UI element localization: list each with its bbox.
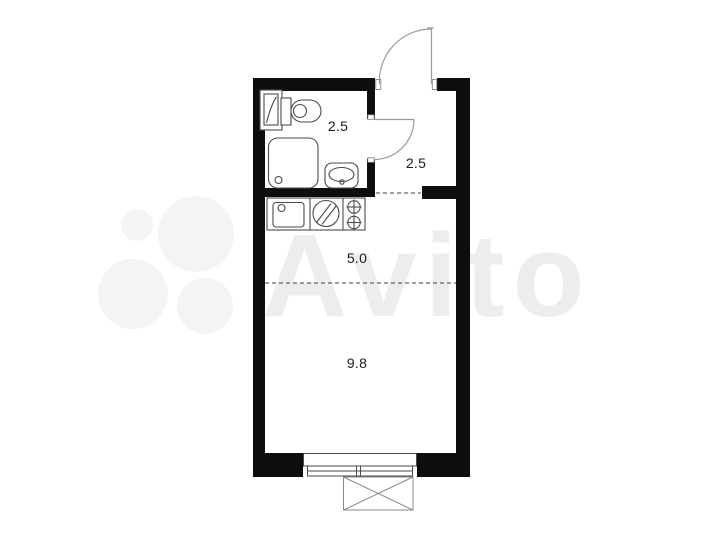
toilet-icon	[281, 98, 321, 125]
area-label-hallway: 2.5	[406, 155, 426, 171]
bathroom-fixtures	[260, 90, 358, 188]
door-jamb-notches	[368, 80, 437, 163]
kitchen-unit	[267, 198, 365, 230]
kitchen-sink-icon	[273, 203, 304, 228]
washing-machine-icon	[260, 90, 282, 130]
washbasin-icon	[325, 163, 358, 188]
bathroom-door-icon	[374, 120, 414, 160]
plan-linework	[0, 0, 720, 540]
balcony-box-icon	[344, 477, 414, 510]
window	[304, 454, 417, 477]
area-label-living-room: 9.8	[347, 355, 367, 371]
shower-tray-icon	[269, 138, 319, 188]
area-label-bathroom: 2.5	[328, 118, 348, 134]
entrance-door-icon	[379, 28, 434, 84]
area-label-kitchen: 5.0	[347, 250, 367, 266]
floor-plan-image: Avito	[0, 0, 720, 540]
